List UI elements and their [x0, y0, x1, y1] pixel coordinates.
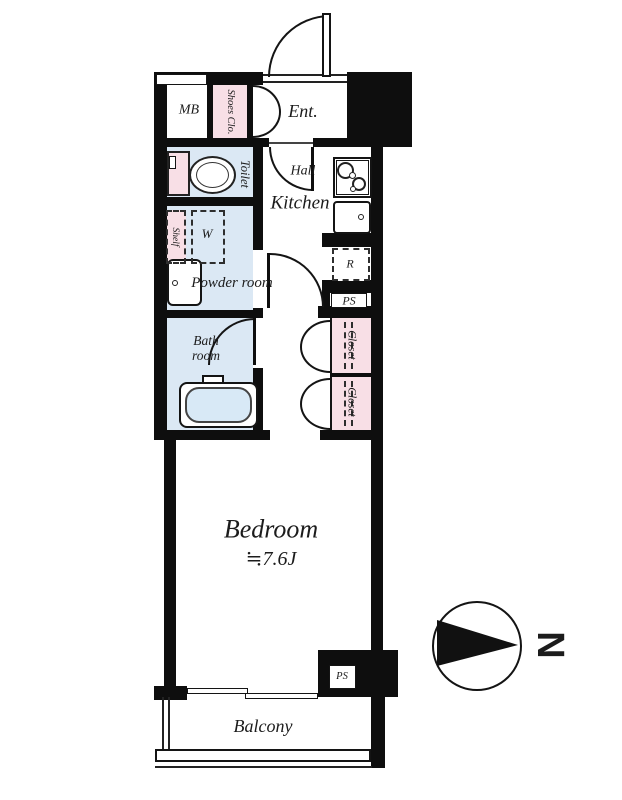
kitchen-sink-drain	[358, 214, 364, 220]
wall-right-column	[371, 140, 383, 655]
shoes-closet-door-arc	[253, 85, 281, 112]
pipe-space-upper-label: PS	[342, 294, 355, 307]
shoes-closet-door-arc	[253, 112, 281, 138]
balcony-railing-line	[155, 766, 372, 768]
balcony-railing	[155, 749, 371, 762]
bath-room-label: Bath room	[181, 334, 231, 364]
bedroom-label: Bedroom	[224, 516, 318, 545]
entrance-door-arc	[268, 15, 330, 77]
shoes-closet-label: Shoes Clo.	[224, 90, 236, 135]
kitchen-label: Kitchen	[270, 194, 329, 215]
closet-door-arc	[300, 378, 330, 404]
washer-label: W	[202, 227, 213, 241]
wall-under-ent	[313, 138, 412, 147]
wall-bedroom-bottom-left	[154, 686, 187, 700]
hall-threshold-line	[269, 142, 313, 144]
wall-bath-bottom	[154, 430, 270, 440]
hall-label: Hall	[291, 163, 316, 178]
wall-top-right-block	[347, 72, 412, 140]
powder-room-label: Powder room	[191, 275, 273, 292]
entrance-threshold-line	[263, 81, 347, 83]
wall-closet-divider	[330, 373, 373, 377]
wall-hall-left-a	[253, 147, 263, 250]
wall-left-bedroom	[164, 438, 176, 690]
floorplan-canvas: N MB Shoes Clo. Ent. Toilet Hall Kitchen…	[0, 0, 622, 800]
wall-under-mb-row	[154, 138, 269, 147]
wall-under-sink	[322, 233, 383, 247]
kitchen-sink-icon	[333, 201, 371, 234]
entrance-label: Ent.	[288, 102, 318, 122]
balcony-partition-line	[162, 697, 164, 755]
closet-door-arc	[300, 347, 330, 373]
toilet-bowl-inner	[196, 162, 229, 188]
toilet-label: Toilet	[237, 160, 251, 188]
wall-under-fridge	[322, 280, 383, 293]
balcony-window-pane	[187, 688, 248, 694]
wall-toilet-bottom	[154, 197, 253, 206]
closet-door-arc	[300, 320, 330, 347]
wall-balcony-right	[371, 695, 385, 768]
bathtub-inner	[185, 387, 252, 423]
stove-burner-dot	[350, 186, 356, 192]
shelf-label: Shelf	[170, 228, 180, 247]
wall-bath-top	[154, 310, 263, 318]
powder-room-door-arc	[270, 253, 324, 307]
mb-panel	[156, 74, 207, 85]
bedroom-size-label: ≒7.6J	[246, 548, 297, 570]
powder-sink-drain	[172, 280, 178, 286]
closet-upper-label: Closet	[345, 330, 358, 359]
north-arrow-icon	[434, 615, 524, 675]
balcony-label: Balcony	[234, 717, 293, 737]
bath-door-leaf	[253, 318, 256, 365]
closet-door-arc	[300, 404, 330, 430]
entrance-door-leaf	[322, 13, 331, 77]
balcony-partition-line	[168, 697, 170, 755]
toilet-tank-handle	[169, 156, 176, 169]
refrigerator-label: R	[346, 257, 353, 270]
mb-label: MB	[179, 102, 199, 117]
north-label: N	[528, 631, 570, 658]
balcony-window-pane	[245, 693, 318, 699]
pipe-space-lower-label: PS	[336, 671, 348, 683]
closet-lower-label: Closet	[345, 387, 358, 416]
wall-mb-divider	[207, 85, 213, 138]
